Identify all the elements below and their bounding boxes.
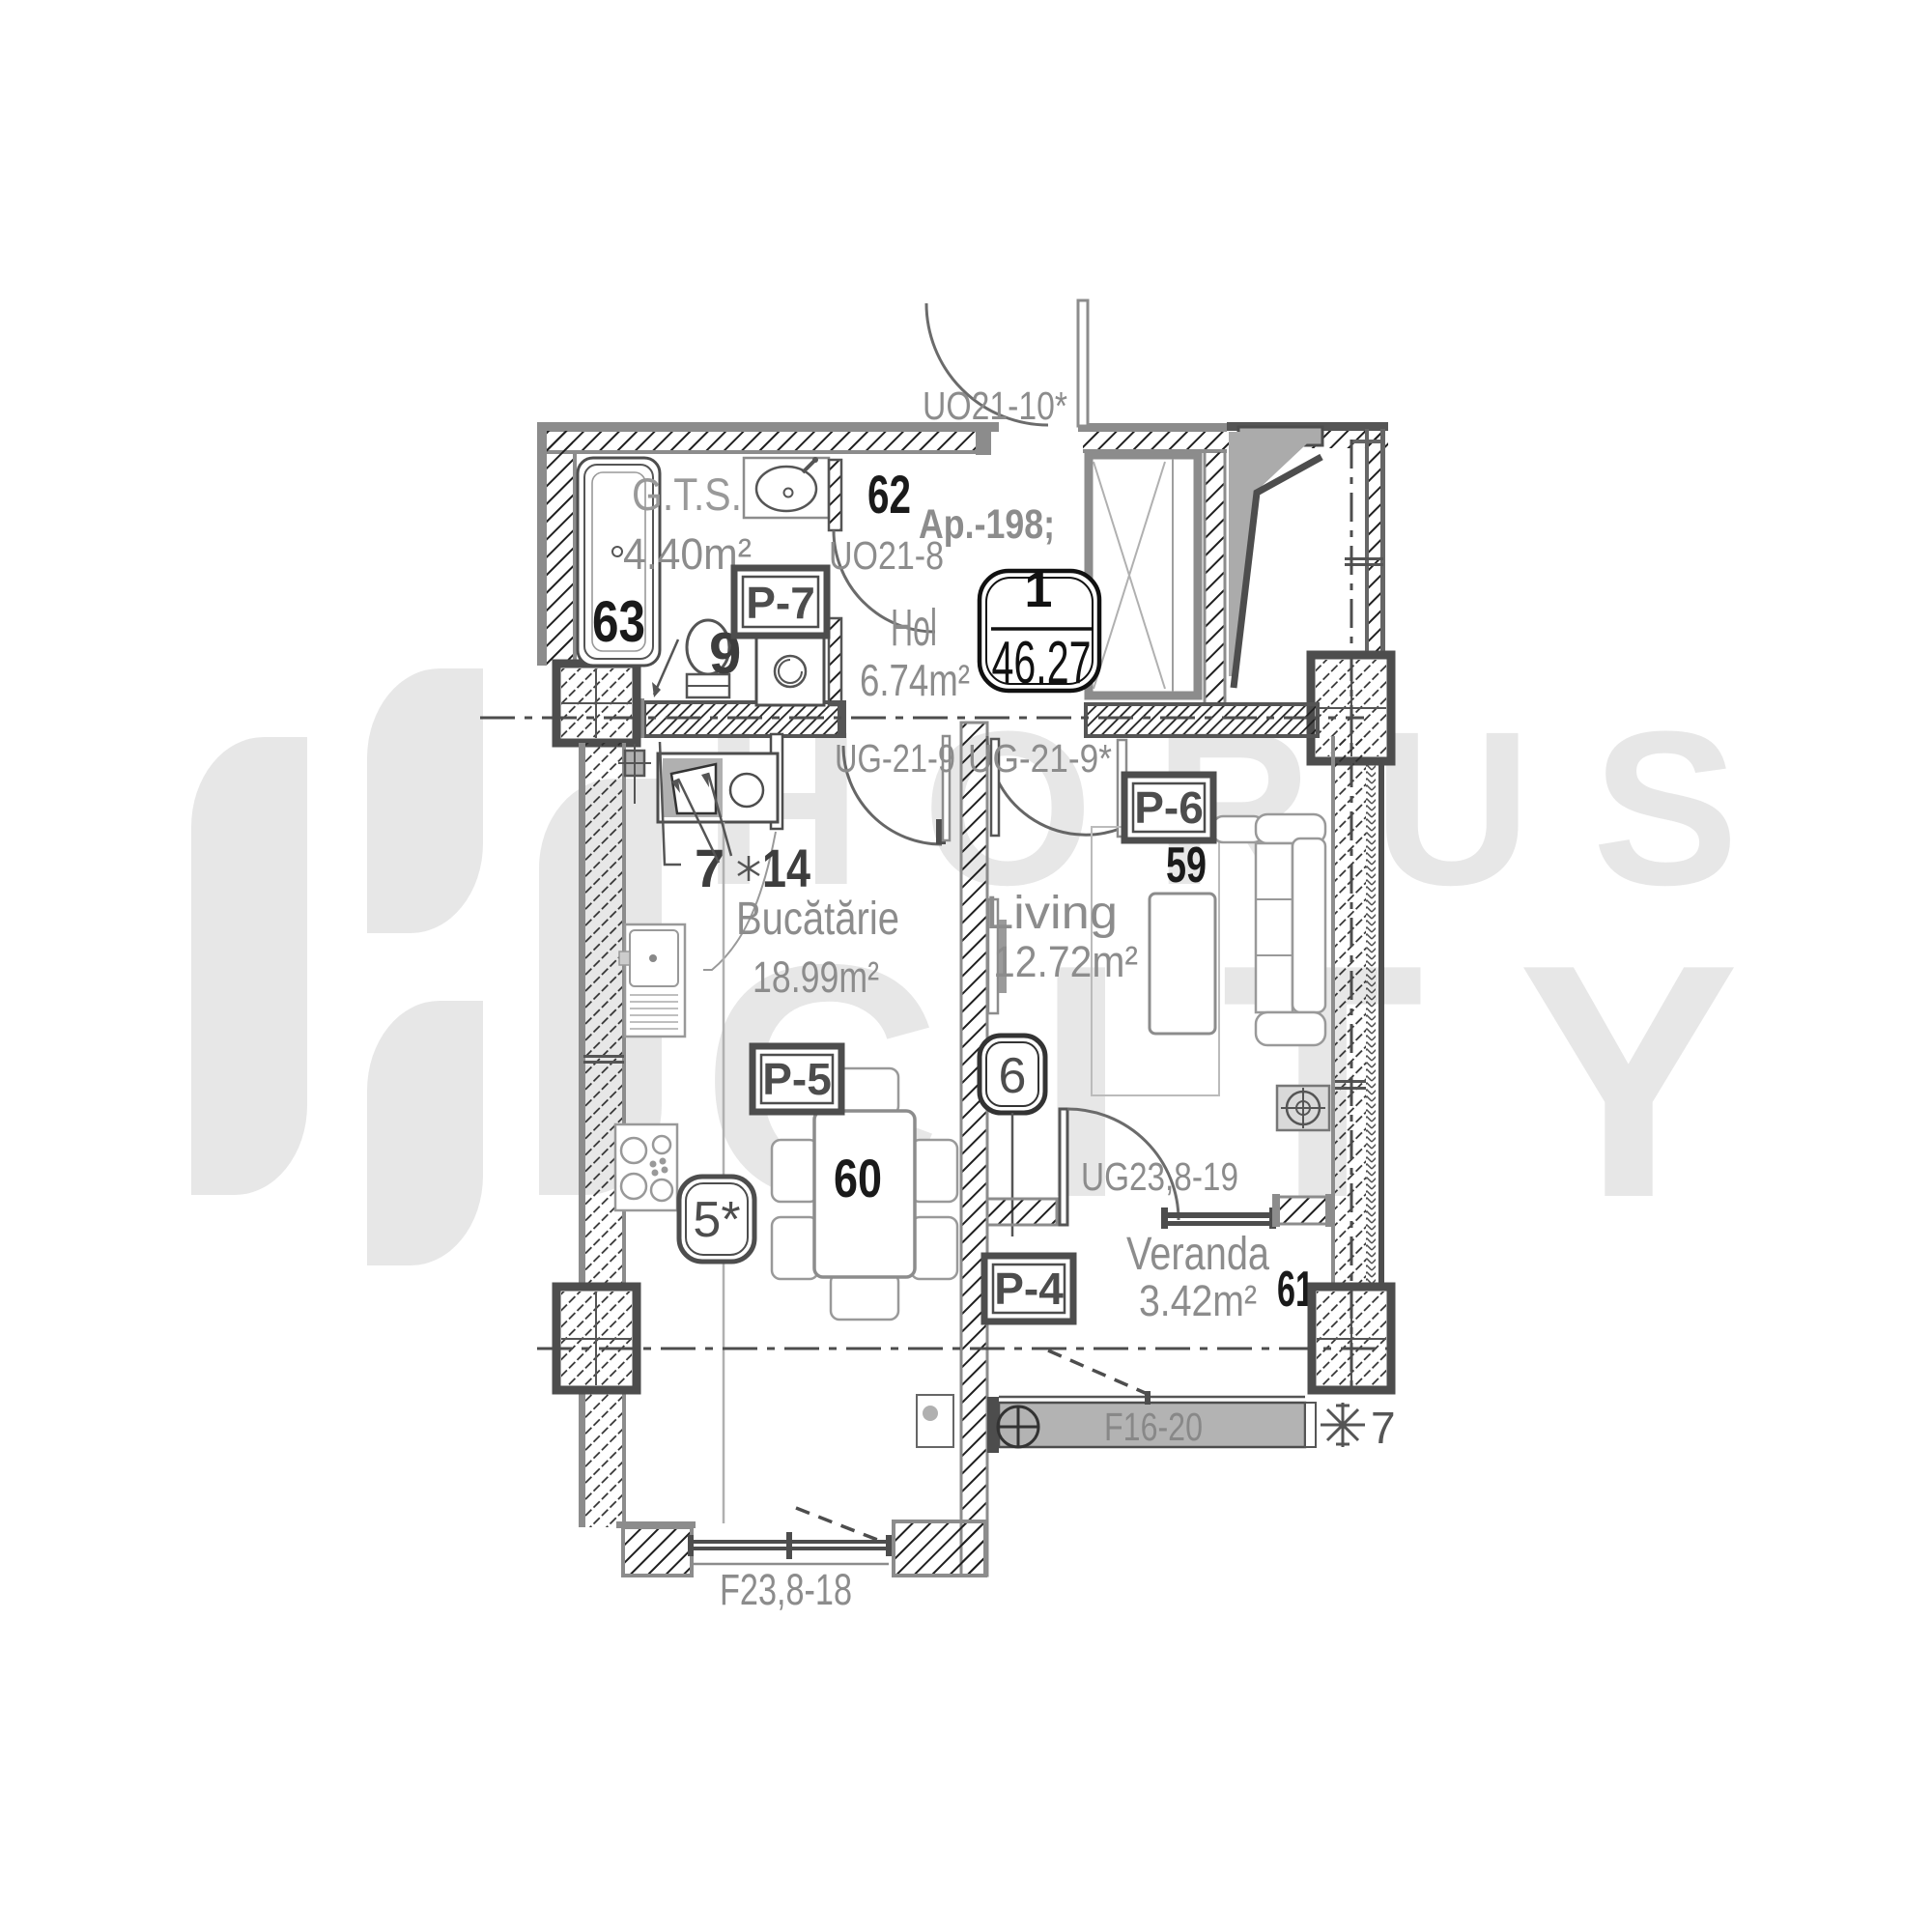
svg-text:14: 14 — [762, 838, 810, 898]
svg-text:60: 60 — [834, 1148, 882, 1208]
svg-text:5*: 5* — [693, 1192, 740, 1248]
svg-text:UG-21-9: UG-21-9 — [835, 736, 955, 781]
svg-text:59: 59 — [1166, 838, 1207, 894]
svg-text:P-7: P-7 — [746, 578, 815, 628]
svg-text:F16-20: F16-20 — [1104, 1405, 1203, 1449]
svg-text:P-5: P-5 — [762, 1054, 832, 1104]
svg-text:F23,8-18: F23,8-18 — [720, 1565, 852, 1614]
svg-text:G.T.S.: G.T.S. — [632, 469, 742, 520]
svg-text:Veranda: Veranda — [1126, 1229, 1269, 1280]
svg-text:P-4: P-4 — [994, 1264, 1064, 1314]
svg-text:Hol: Hol — [891, 599, 937, 657]
svg-text:63: 63 — [592, 589, 645, 654]
svg-text:62: 62 — [867, 464, 911, 525]
svg-text:7: 7 — [695, 838, 724, 898]
svg-text:3.42m²: 3.42m² — [1139, 1276, 1257, 1325]
svg-text:Living: Living — [985, 888, 1118, 939]
svg-text:UO21-10*: UO21-10* — [923, 384, 1067, 428]
svg-text:46.27: 46.27 — [992, 630, 1092, 696]
svg-text:6.74m²: 6.74m² — [860, 655, 970, 705]
svg-text:UO21-8: UO21-8 — [829, 533, 944, 578]
svg-text:6: 6 — [999, 1048, 1027, 1104]
svg-text:UG23,8-19: UG23,8-19 — [1081, 1154, 1238, 1199]
svg-text:7: 7 — [1371, 1403, 1396, 1453]
svg-text:Bucătărie: Bucătărie — [736, 894, 899, 945]
svg-text:12.72m²: 12.72m² — [993, 937, 1138, 986]
svg-text:P-6: P-6 — [1134, 782, 1204, 833]
svg-text:UG-21-9*: UG-21-9* — [968, 736, 1112, 781]
svg-text:1: 1 — [1025, 562, 1053, 618]
svg-text:18.99m²: 18.99m² — [753, 952, 879, 1002]
